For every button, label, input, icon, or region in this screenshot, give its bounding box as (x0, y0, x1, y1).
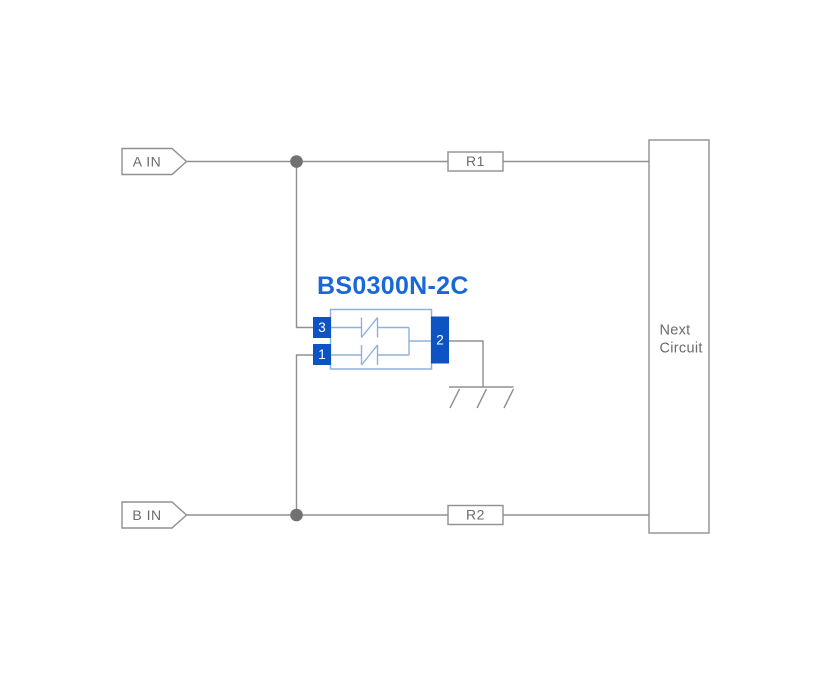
input-b-label: B IN (132, 507, 161, 523)
component-body (331, 310, 432, 370)
resistor-r1: R1 (448, 152, 503, 171)
circuit-diagram: A IN B IN R1 R2 Next Circuit BS0300N-2C (0, 0, 832, 675)
wire-b-branch-to-pin1 (297, 355, 314, 515)
next-circuit-label-line2: Circuit (660, 341, 703, 357)
wire-a-branch-to-pin3 (297, 162, 314, 328)
ground-hatch-2 (477, 389, 487, 408)
next-circuit-label-line1: Next (660, 323, 691, 339)
ground-hatch-1 (450, 389, 460, 408)
input-a-label: A IN (133, 154, 161, 170)
resistor-r2-label: R2 (466, 507, 485, 523)
junction-dot-a (290, 155, 303, 168)
next-circuit-block: Next Circuit (649, 140, 709, 533)
junction-dot-b (290, 509, 303, 522)
pin-2-label: 2 (436, 333, 444, 348)
pin-3-label: 3 (318, 320, 326, 335)
input-b-tag: B IN (122, 502, 187, 528)
input-a-tag: A IN (122, 149, 187, 175)
resistor-r2: R2 (448, 506, 503, 525)
diagram-canvas: A IN B IN R1 R2 Next Circuit BS0300N-2C (0, 0, 832, 675)
ground-icon (449, 387, 514, 408)
component-title: BS0300N-2C (317, 272, 469, 300)
pin-1-label: 1 (318, 347, 326, 362)
tvs-component: BS0300N-2C (313, 272, 469, 369)
wire-pin2-to-ground (449, 341, 483, 387)
ground-hatch-3 (504, 389, 514, 408)
resistor-r1-label: R1 (466, 153, 485, 169)
